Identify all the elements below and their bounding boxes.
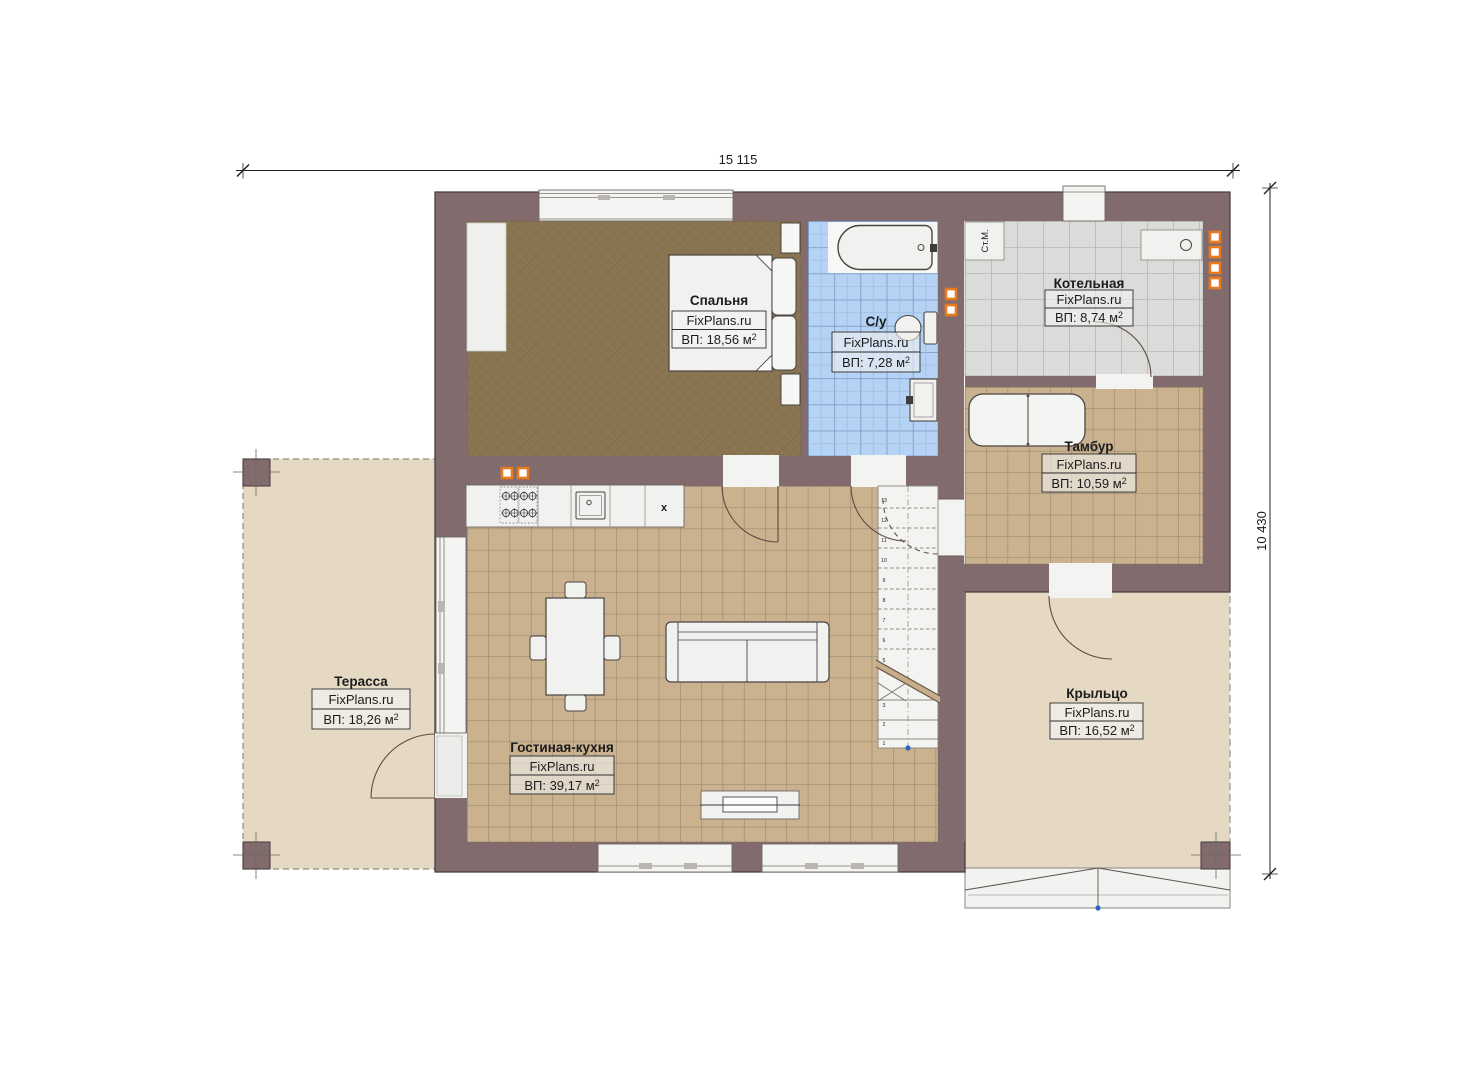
svg-text:Терасса: Терасса (334, 674, 388, 689)
svg-text:ВП: 10,59 м2: ВП: 10,59 м2 (1051, 476, 1126, 491)
svg-text:7: 7 (883, 618, 886, 624)
svg-text:FixPlans.ru: FixPlans.ru (1056, 292, 1121, 307)
svg-text:10 430: 10 430 (1254, 511, 1269, 551)
svg-text:FixPlans.ru: FixPlans.ru (843, 335, 908, 350)
svg-text:С/у: С/у (865, 314, 887, 329)
svg-text:9: 9 (883, 578, 886, 584)
svg-text:Ст.М.: Ст.М. (980, 229, 991, 252)
svg-text:ВП: 18,26 м2: ВП: 18,26 м2 (323, 712, 398, 727)
svg-text:x: x (661, 502, 668, 514)
svg-text:ВП: 18,56 м2: ВП: 18,56 м2 (681, 332, 756, 347)
svg-text:11: 11 (881, 538, 886, 544)
svg-text:15 115: 15 115 (719, 152, 758, 167)
svg-text:6: 6 (883, 638, 886, 644)
svg-text:Гостиная-кухня: Гостиная-кухня (510, 740, 613, 755)
svg-text:ВП: 39,17 м2: ВП: 39,17 м2 (524, 778, 599, 793)
svg-text:FixPlans.ru: FixPlans.ru (1056, 457, 1121, 472)
svg-text:ВП: 7,28 м2: ВП: 7,28 м2 (842, 355, 910, 370)
svg-text:FixPlans.ru: FixPlans.ru (328, 692, 393, 707)
svg-text:Тамбур: Тамбур (1065, 439, 1114, 454)
svg-text:FixPlans.ru: FixPlans.ru (1064, 705, 1129, 720)
svg-text:1: 1 (883, 741, 886, 747)
svg-text:Котельная: Котельная (1054, 276, 1125, 291)
svg-text:5: 5 (883, 658, 886, 664)
svg-text:Крыльцо: Крыльцо (1066, 686, 1127, 701)
svg-text:3: 3 (883, 703, 886, 709)
svg-text:ВП: 16,52 м2: ВП: 16,52 м2 (1059, 723, 1134, 738)
svg-text:2: 2 (883, 722, 886, 728)
svg-text:8: 8 (883, 598, 886, 604)
svg-text:10: 10 (881, 558, 887, 564)
svg-text:13: 13 (881, 498, 887, 504)
svg-text:ВП: 8,74 м2: ВП: 8,74 м2 (1055, 310, 1123, 325)
svg-text:FixPlans.ru: FixPlans.ru (529, 759, 594, 774)
svg-text:FixPlans.ru: FixPlans.ru (686, 313, 751, 328)
svg-text:Спальня: Спальня (690, 293, 748, 308)
svg-text:12: 12 (881, 518, 887, 524)
